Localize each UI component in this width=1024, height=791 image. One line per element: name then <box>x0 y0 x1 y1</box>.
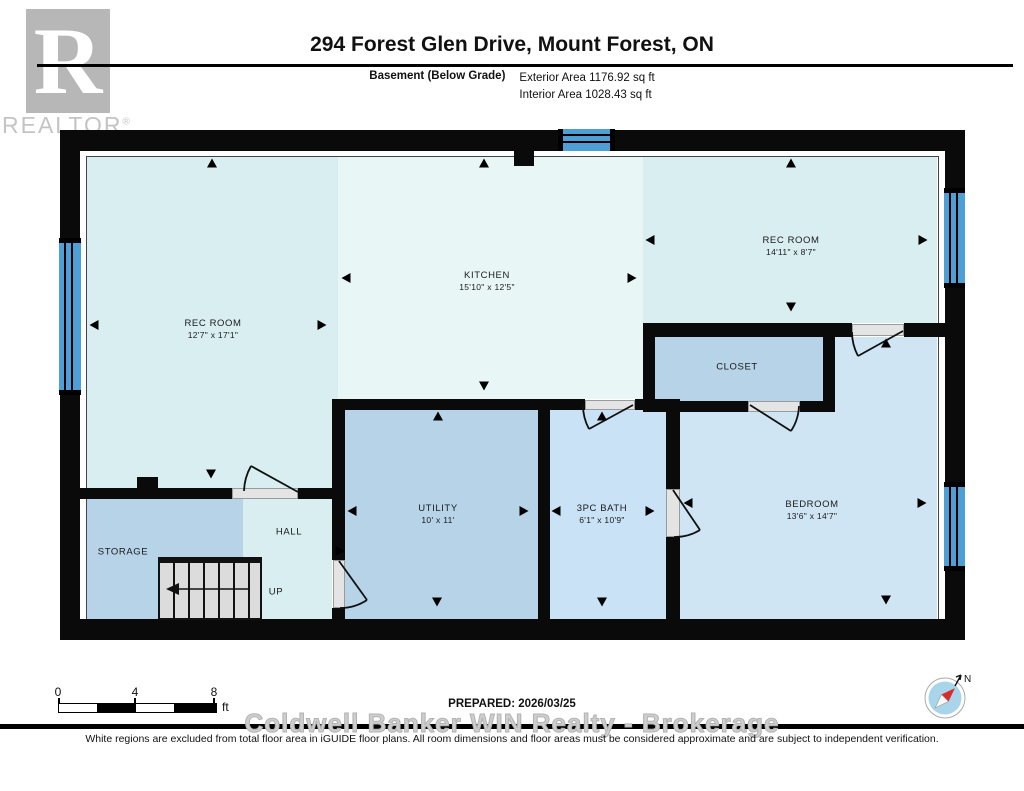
wall-right-horizontal-b <box>904 323 965 337</box>
dimension-arrow-right <box>336 546 345 556</box>
wall-right-horizontal-a <box>643 323 852 337</box>
dimension-arrow-up <box>479 159 489 168</box>
scale-tick-label-0: 0 <box>55 685 62 699</box>
dimension-arrow-down <box>786 303 796 312</box>
compass-icon: N <box>914 662 980 728</box>
wall-recroom-bottom-a <box>60 488 232 499</box>
door-bath-top <box>585 400 635 410</box>
wall-recroom-stub <box>137 477 158 489</box>
wall-closet-bottom-b <box>800 401 835 412</box>
label-hall: HALL <box>276 527 302 538</box>
label-bedroom: BEDROOM 13'6" x 14'7" <box>785 499 838 521</box>
window-top <box>558 129 615 151</box>
label-kitchen: KITCHEN 15'10" x 12'5" <box>459 270 515 292</box>
dimension-arrow-down <box>432 598 442 607</box>
dimension-arrow-up <box>881 339 891 348</box>
scale-tick-label-8: 8 <box>211 685 218 699</box>
area-values: Exterior Area 1176.92 sq ft Interior Are… <box>519 70 654 104</box>
disclaimer-text: White regions are excluded from total fl… <box>0 733 1024 745</box>
door-hall-utility <box>333 560 345 608</box>
exterior-area: Exterior Area 1176.92 sq ft <box>519 70 654 87</box>
wall-bath-bedroom-a <box>666 399 680 489</box>
door-recroom-bedroom <box>852 324 904 336</box>
floor-plan-page: R REALTOR® 294 Forest Glen Drive, Mount … <box>0 0 1024 791</box>
dimension-arrow-down <box>597 598 607 607</box>
wall-hall-utility-a <box>332 399 345 560</box>
interior-area: Interior Area 1028.43 sq ft <box>519 87 654 104</box>
dimension-arrow-right <box>318 320 327 330</box>
scale-tick-label-4: 4 <box>132 685 139 699</box>
compass-north-label: N <box>964 674 971 685</box>
dimension-arrow-right <box>520 506 529 516</box>
label-rec-room-left: REC ROOM 12'7" x 17'1" <box>184 318 241 340</box>
dimension-arrow-right <box>628 273 637 283</box>
dimension-arrow-down <box>881 596 891 605</box>
dimension-arrow-left <box>348 506 357 516</box>
dimension-arrow-up <box>207 159 217 168</box>
label-bath: 3PC BATH 6'1" x 10'9" <box>577 503 628 525</box>
wall-utility-bath <box>538 399 550 620</box>
wall-hall-utility-b <box>332 608 345 620</box>
wall-utility-top <box>332 399 550 410</box>
label-stairs-up: UP <box>269 587 283 598</box>
window-right-upper <box>944 188 965 288</box>
floor-label: Basement (Below Grade) <box>369 70 505 82</box>
dimension-arrow-down <box>479 382 489 391</box>
wall-top-stub <box>514 151 534 166</box>
dimension-arrow-right <box>919 235 928 245</box>
wall-closet-bottom-a <box>643 401 748 412</box>
floor-summary: Basement (Below Grade) Exterior Area 117… <box>0 70 1024 104</box>
window-left <box>59 238 81 395</box>
dimension-arrow-left <box>90 320 99 330</box>
room-bedroom-upper <box>835 337 937 412</box>
staircase <box>158 557 262 620</box>
label-closet: CLOSET <box>716 362 758 373</box>
dimension-arrow-left <box>646 235 655 245</box>
registered-mark: ® <box>123 116 132 127</box>
door-recroom-hall <box>232 488 298 499</box>
label-utility: UTILITY 10' x 11' <box>418 503 458 525</box>
dimension-arrow-up <box>433 412 443 421</box>
door-closet <box>748 401 800 412</box>
wall-outer-top <box>60 130 965 151</box>
window-right-lower <box>944 482 965 571</box>
dimension-arrow-up <box>786 159 796 168</box>
wall-bath-top-a <box>550 399 585 410</box>
door-bath-bedroom <box>666 489 680 537</box>
dimension-arrow-left <box>684 498 693 508</box>
dimension-arrow-up <box>597 412 607 421</box>
label-rec-room-right: REC ROOM 14'11" x 8'7" <box>762 235 819 257</box>
label-storage: STORAGE <box>98 547 148 558</box>
header-divider <box>37 64 1013 67</box>
dimension-arrow-down <box>206 470 216 479</box>
dimension-arrow-right <box>646 506 655 516</box>
wall-outer-bottom <box>60 619 965 640</box>
page-title: 294 Forest Glen Drive, Mount Forest, ON <box>0 33 1024 57</box>
dimension-arrow-left <box>342 273 351 283</box>
dimension-arrow-left <box>552 506 561 516</box>
dimension-arrow-right <box>918 498 927 508</box>
wall-bath-bedroom-b <box>666 537 680 620</box>
